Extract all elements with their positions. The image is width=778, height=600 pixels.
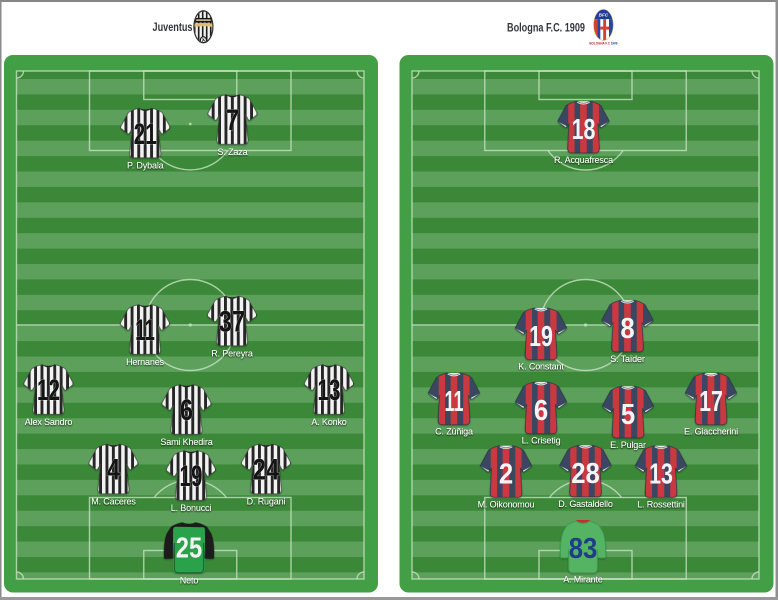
svg-text:37: 37 (219, 306, 245, 339)
svg-text:Juventus: Juventus (153, 20, 193, 34)
svg-text:C. Zúñiga: C. Zúñiga (435, 427, 473, 437)
svg-text:28: 28 (571, 458, 600, 490)
svg-text:4: 4 (107, 454, 121, 487)
svg-text:L. Crisetig: L. Crisetig (522, 436, 561, 446)
svg-text:Bologna F.C. 1909: Bologna F.C. 1909 (507, 21, 585, 35)
svg-text:18: 18 (572, 114, 596, 146)
svg-text:R. Acquafresca: R. Acquafresca (554, 155, 613, 165)
svg-text:K. Constant: K. Constant (518, 362, 564, 372)
svg-text:6: 6 (534, 395, 548, 427)
svg-text:11: 11 (135, 314, 155, 347)
svg-text:BOLOGNA F.C 1909: BOLOGNA F.C 1909 (589, 41, 617, 45)
svg-text:S. Zaza: S. Zaza (218, 147, 248, 157)
svg-text:6: 6 (180, 394, 193, 427)
svg-text:BFC: BFC (599, 13, 609, 18)
svg-text:Sami Khedira: Sami Khedira (160, 437, 212, 447)
svg-text:P. Dybala: P. Dybala (127, 161, 164, 171)
svg-text:E. Pulgar: E. Pulgar (610, 440, 646, 450)
svg-text:E. Giaccherini: E. Giaccherini (684, 427, 738, 437)
svg-text:11: 11 (445, 386, 464, 418)
svg-text:M. Oikonomou: M. Oikonomou (478, 499, 535, 509)
svg-text:13: 13 (318, 374, 341, 407)
svg-text:5: 5 (621, 399, 635, 431)
svg-text:17: 17 (699, 386, 723, 418)
svg-text:19: 19 (180, 460, 203, 493)
svg-text:21: 21 (134, 118, 157, 151)
svg-text:25: 25 (176, 533, 202, 565)
svg-text:Alex Sandro: Alex Sandro (25, 417, 73, 427)
svg-text:M. Caceres: M. Caceres (91, 496, 136, 506)
svg-text:19: 19 (529, 321, 553, 353)
svg-text:S. Taïder: S. Taïder (610, 354, 645, 364)
svg-text:12: 12 (37, 374, 60, 407)
svg-text:13: 13 (649, 459, 673, 491)
svg-text:7: 7 (226, 104, 239, 137)
svg-text:83: 83 (569, 533, 598, 565)
svg-text:8: 8 (620, 313, 634, 345)
svg-text:L. Rossettini: L. Rossettini (637, 499, 685, 509)
svg-text:Hernanes: Hernanes (126, 357, 164, 367)
svg-text:Neto: Neto (180, 575, 199, 585)
svg-text:A. Mirante: A. Mirante (563, 575, 603, 585)
svg-text:L. Bonucci: L. Bonucci (171, 503, 212, 513)
svg-text:D. Gastaldello: D. Gastaldello (558, 499, 613, 509)
svg-text:2: 2 (499, 459, 513, 491)
svg-text:24: 24 (253, 454, 280, 487)
svg-text:R. Pereyra: R. Pereyra (211, 348, 253, 358)
svg-text:D. Rugani: D. Rugani (247, 496, 286, 506)
svg-text:A. Konko: A. Konko (311, 417, 346, 427)
